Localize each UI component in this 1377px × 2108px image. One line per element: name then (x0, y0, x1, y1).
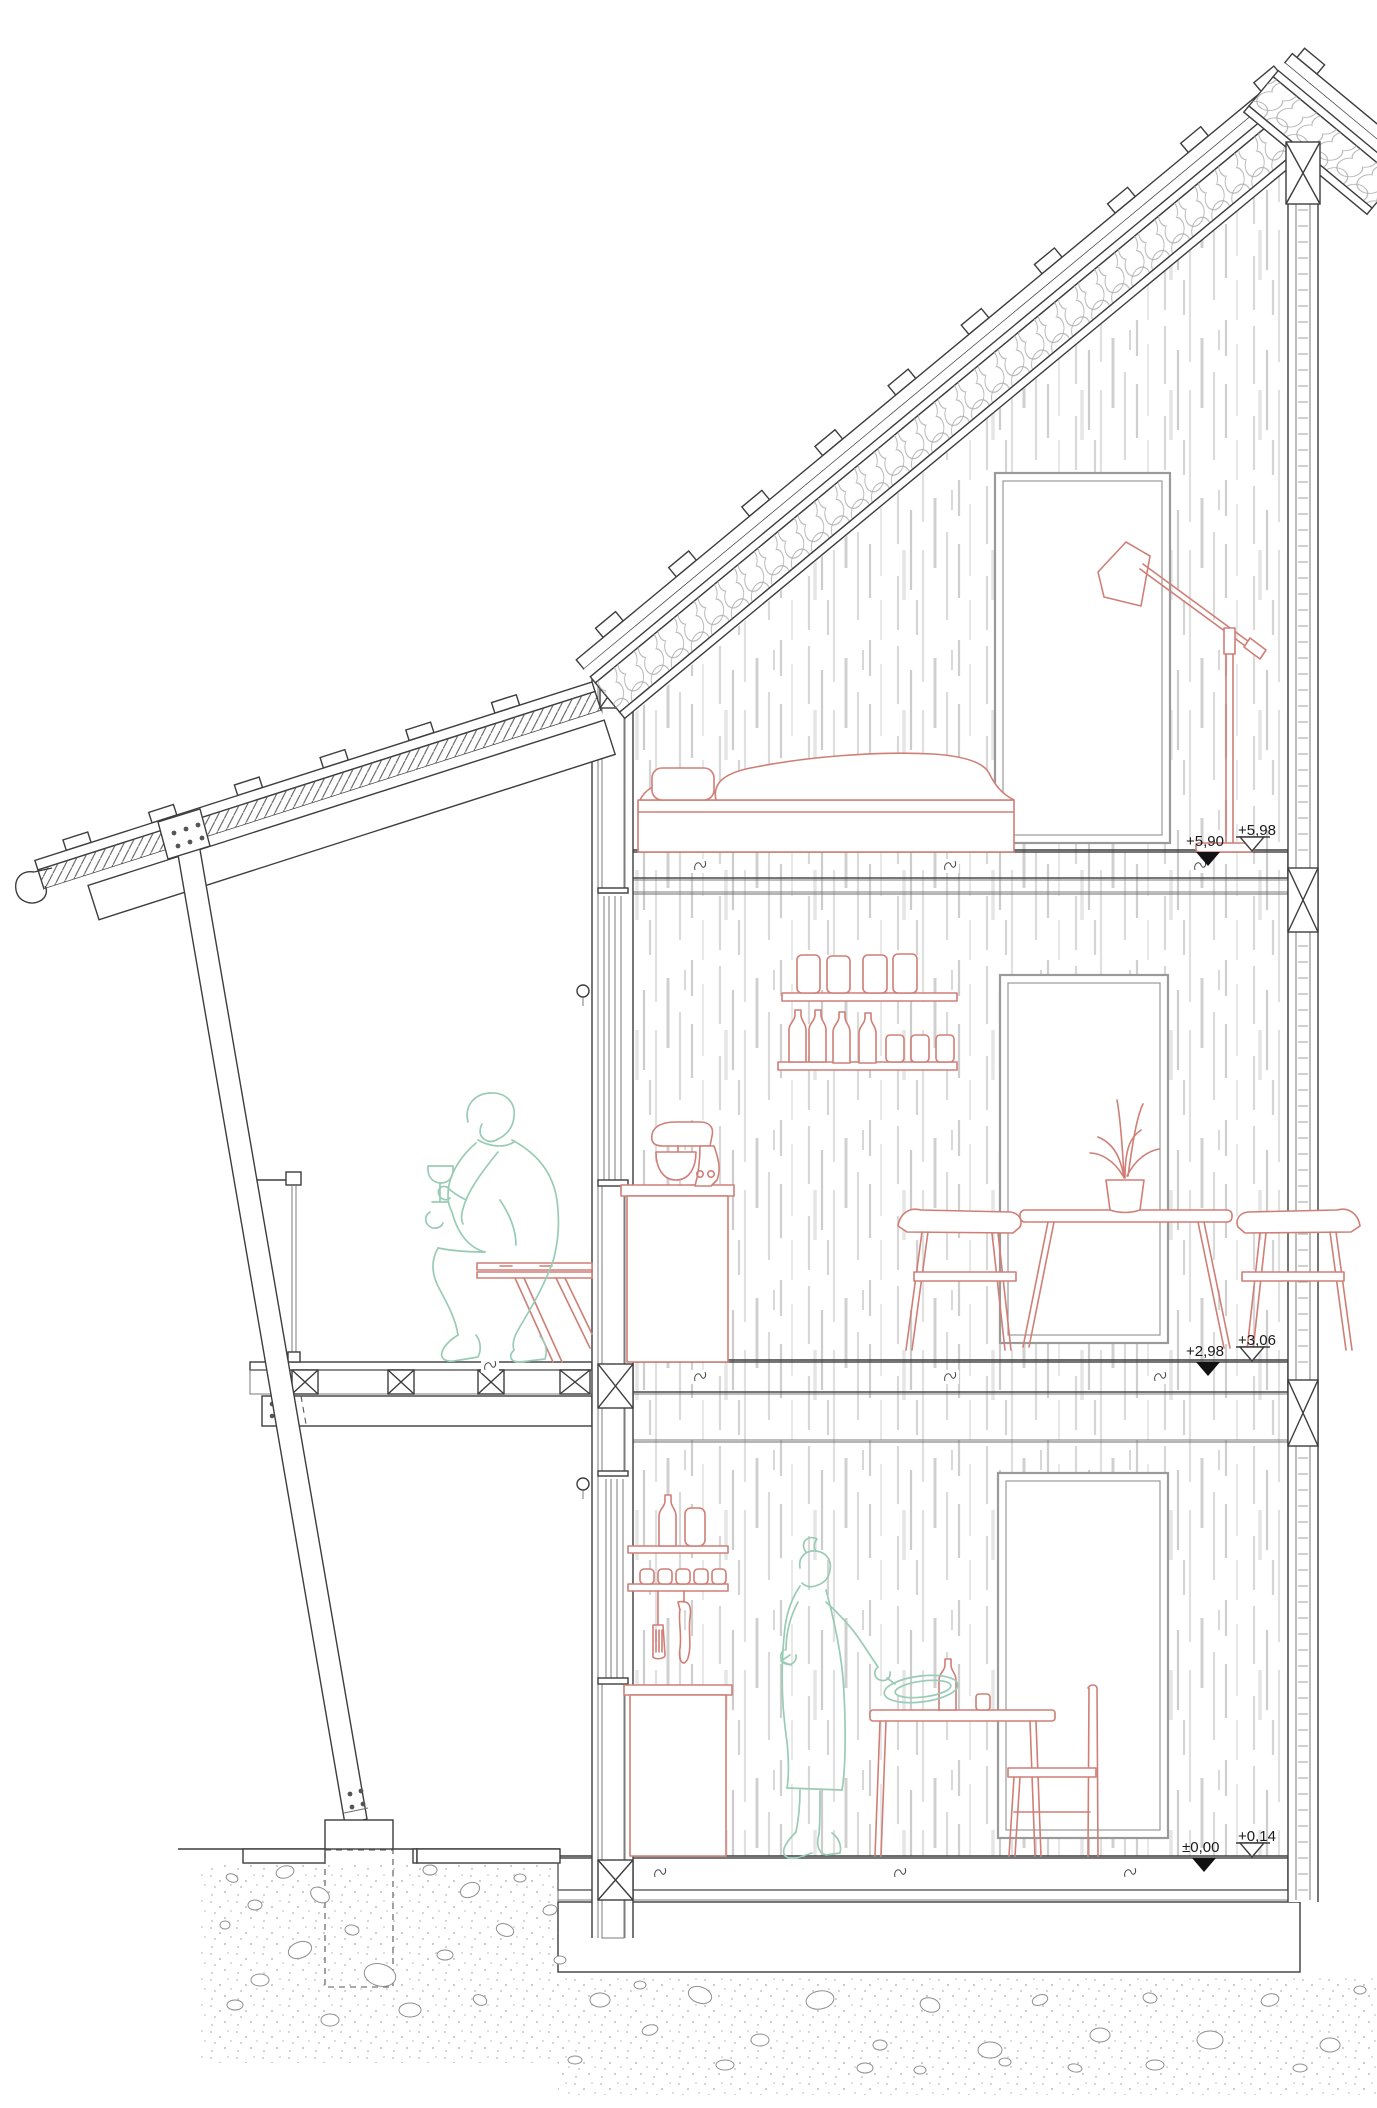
wall-window-middle (598, 888, 628, 1186)
canopy-roof (32, 672, 616, 933)
bed (638, 753, 1014, 852)
svg-text:±0,00: ±0,00 (1182, 1839, 1219, 1856)
inclined-column (158, 809, 368, 1824)
wall-window-ground (598, 1471, 628, 1684)
window-upper-floor (995, 473, 1170, 843)
svg-text:+5,90: +5,90 (1186, 833, 1224, 850)
balcony-bench (477, 1263, 592, 1362)
middle-wall-section (577, 658, 633, 1938)
section-drawing: +5,98 +5,90 +3,06 +2,98 +0,14 ±0,00 (0, 0, 1377, 2108)
floor-slab-ground (558, 1856, 1300, 1972)
kitchen-counter-ground (624, 1685, 732, 1856)
kitchen-counter-middle (621, 1185, 734, 1362)
ridge-beam (1286, 142, 1320, 204)
right-wall-section (1288, 150, 1318, 1902)
window-middle-floor (1000, 975, 1168, 1343)
balcony-deck (250, 1362, 592, 1426)
figure-sitting-man (426, 1093, 559, 1362)
elevation-marker-ground-filled: ±0,00 (1182, 1839, 1219, 1872)
svg-text:+2,98: +2,98 (1186, 1343, 1224, 1360)
window-ground-floor (998, 1473, 1168, 1838)
